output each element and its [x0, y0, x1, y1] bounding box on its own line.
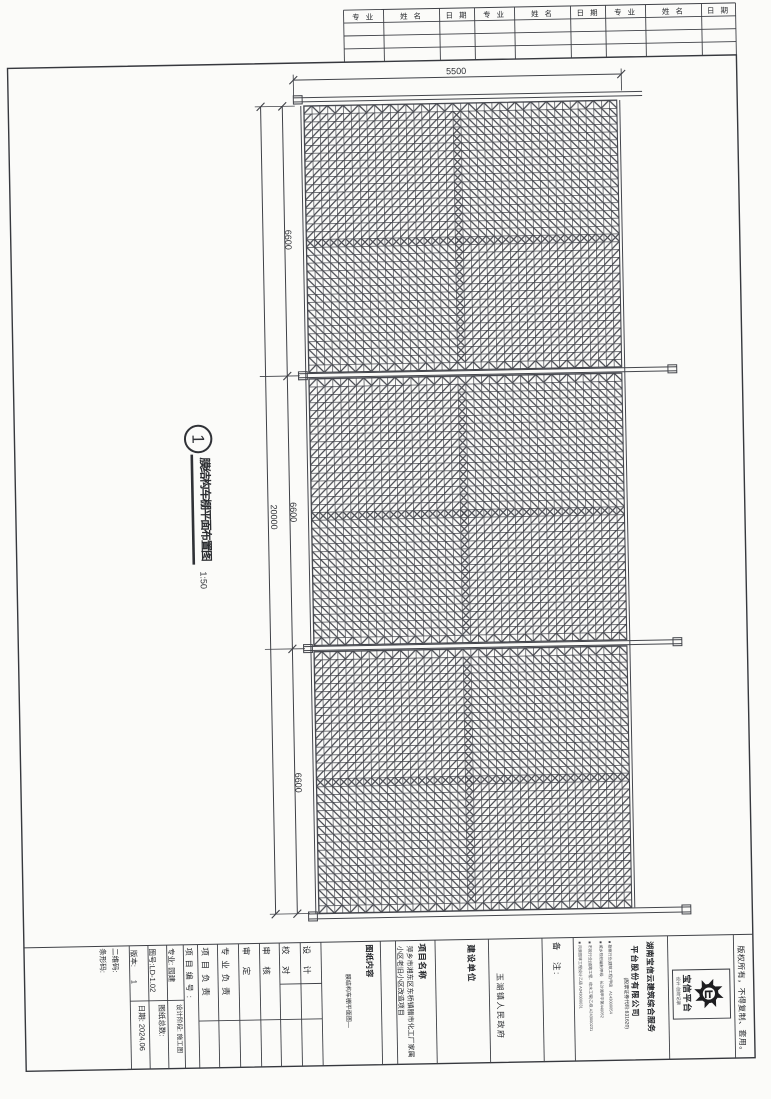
svg-text:■ 市政行业(道路工程、给水工程)乙级 A243000231: ■ 市政行业(道路工程、给水工程)乙级 A243000231 [587, 941, 595, 1032]
svg-text:二维码:: 二维码: [110, 948, 120, 973]
svg-text:姓 名: 姓 名 [662, 6, 685, 16]
svg-text:日 期: 日 期 [576, 8, 599, 17]
svg-text:1:50: 1:50 [198, 571, 208, 589]
svg-text:版权所有，不得复制、套用。: 版权所有，不得复制、套用。 [736, 945, 748, 1054]
svg-text:建设单位: 建设单位 [466, 943, 477, 982]
svg-text:6600: 6600 [283, 230, 293, 250]
svg-text:专 业: 专 业 [614, 7, 637, 17]
svg-text:专 业: 专 业 [352, 11, 375, 21]
svg-text:宝信平台: 宝信平台 [682, 974, 694, 1012]
svg-text:图纸总数:: 图纸总数: [157, 1004, 168, 1036]
svg-text:6600: 6600 [288, 502, 298, 522]
svg-text:专业: 园建: 专业: 园建 [166, 948, 177, 983]
svg-text:20000: 20000 [269, 504, 279, 529]
svg-text:5500: 5500 [446, 66, 466, 76]
svg-text:设计阶段: 施工图: 设计阶段: 施工图 [175, 1004, 185, 1053]
svg-text:小区老旧小区改造项目: 小区老旧小区改造项目 [395, 946, 405, 1016]
svg-text:膜结构车棚平面图—: 膜结构车棚平面图— [344, 974, 353, 1028]
svg-text:审 核: 审 核 [261, 946, 272, 976]
svg-text:图号:LD-1.02: 图号:LD-1.02 [147, 948, 157, 992]
svg-text:湖南宝信云建筑综合服务: 湖南宝信云建筑综合服务 [645, 941, 657, 1033]
svg-text:审 定: 审 定 [241, 947, 252, 977]
svg-text:日期: 2024.06: 日期: 2024.06 [137, 1005, 147, 1051]
svg-text:日 期: 日 期 [707, 6, 730, 15]
svg-text:专 业: 专 业 [483, 9, 506, 19]
svg-text:玉湖镇人民政府: 玉湖镇人民政府 [495, 973, 506, 1040]
svg-text:姓 名: 姓 名 [400, 11, 423, 21]
svg-text:项目负责: 项目负责 [200, 947, 211, 1000]
svg-text:日 期: 日 期 [445, 11, 468, 20]
svg-text:■ 城乡规划编制甲级 长沙湘甲字第440052: ■ 城乡规划编制甲级 长沙湘甲字第440052 [598, 941, 605, 1019]
svg-text:专业负责: 专业负责 [220, 947, 231, 1000]
svg-text:6600: 6600 [293, 773, 303, 793]
svg-text:校 对: 校 对 [280, 946, 291, 976]
svg-text:1: 1 [188, 434, 207, 444]
svg-text:设 计: 设 计 [301, 945, 312, 975]
svg-text:项目名称: 项目名称 [417, 943, 428, 979]
svg-text:■ 勘察行业(建筑工程)甲级 A143000054: ■ 勘察行业(建筑工程)甲级 A143000054 [607, 941, 614, 1015]
svg-text:项目编号:: 项目编号: [184, 948, 195, 1002]
svg-text:平台股份有限公司: 平台股份有限公司 [629, 945, 640, 1017]
svg-text:(股票证券代码:831620): (股票证券代码:831620) [623, 978, 631, 1030]
svg-text:萍乡市湘东区东桥镇腊市化工厂家属: 萍乡市湘东区东桥镇腊市化工厂家属 [405, 946, 416, 1058]
svg-text:■ 风景园林工程设计乙级 A343000031: ■ 风景园林工程设计乙级 A343000031 [577, 941, 584, 1009]
svg-text:设计·创效记录: 设计·创效记录 [675, 977, 683, 1006]
svg-text:备 注:: 备 注: [551, 942, 562, 976]
svg-text:膜结构车棚平面布置图: 膜结构车棚平面布置图 [198, 457, 214, 561]
svg-text:版本:: 版本: [129, 950, 139, 967]
svg-text:姓 名: 姓 名 [531, 8, 554, 18]
svg-text:1: 1 [130, 980, 139, 984]
svg-text:图纸内容: 图纸内容 [364, 944, 375, 977]
svg-text:条形码:: 条形码: [98, 948, 108, 973]
